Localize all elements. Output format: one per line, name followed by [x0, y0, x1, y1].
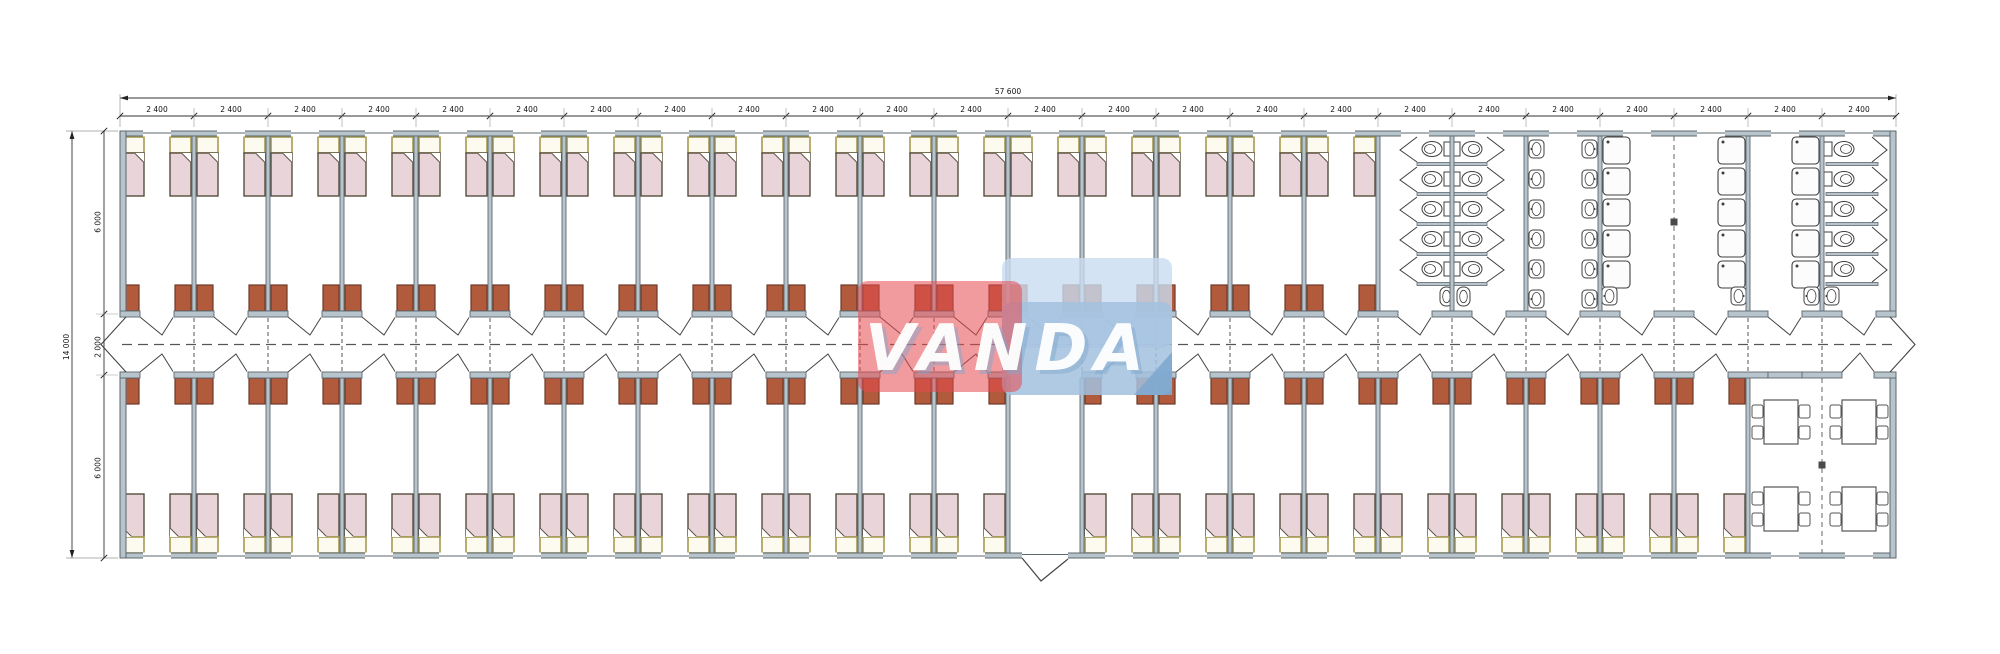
tap	[1805, 295, 1807, 297]
bowl-inner	[1425, 265, 1436, 274]
wardrobe-icon	[419, 285, 435, 311]
window	[1327, 553, 1355, 559]
corridor-wall	[544, 311, 584, 317]
partition-wall	[784, 136, 788, 311]
window	[1549, 553, 1577, 559]
wardrobe-icon	[641, 285, 657, 311]
bowl-inner	[1469, 235, 1480, 244]
door-swing	[1620, 317, 1653, 335]
wardrobe-icon	[789, 378, 805, 404]
stall-door	[1872, 137, 1887, 162]
bowl-inner	[1841, 145, 1852, 154]
module-dim-label: 2 400	[1626, 105, 1648, 114]
pillow	[762, 537, 783, 553]
window	[1475, 131, 1503, 137]
wardrobe-icon	[715, 378, 731, 404]
wardrobe-icon	[1581, 378, 1597, 404]
column-marker	[1671, 219, 1678, 226]
bed-icon	[641, 494, 662, 553]
pillow	[1529, 537, 1550, 553]
pillow	[1724, 537, 1745, 553]
partition-wall	[784, 378, 788, 553]
chair-icon	[1799, 513, 1810, 526]
stall-partition	[1452, 193, 1487, 196]
wardrobe-icon	[493, 378, 509, 404]
corridor-wall	[470, 311, 510, 317]
partition-wall	[1080, 378, 1084, 553]
wardrobe-icon	[271, 285, 287, 311]
floor-plan: VANDA VANDA 57 600 14 000 2 4002 4002 40…	[0, 0, 2000, 654]
door-swing	[140, 317, 173, 335]
overall-width-label: 57 600	[995, 87, 1021, 96]
window	[1475, 553, 1503, 559]
basin	[1734, 290, 1743, 303]
pillow	[1576, 537, 1597, 553]
tap	[1742, 295, 1744, 297]
bowl-inner	[1425, 235, 1436, 244]
wardrobe-icon	[619, 285, 635, 311]
window	[1845, 131, 1873, 137]
toilet-icon	[1422, 232, 1452, 247]
bed-icon	[493, 494, 514, 553]
toilet-icon	[1452, 142, 1482, 157]
sink-icon	[1529, 290, 1544, 308]
pillow	[318, 537, 339, 553]
stall-door	[1487, 137, 1504, 162]
corridor-wall	[1580, 372, 1620, 378]
wardrobe-icon	[1455, 378, 1471, 404]
wardrobe-icon	[397, 378, 413, 404]
chair-icon	[1752, 513, 1763, 526]
pillow	[1058, 137, 1079, 153]
window	[957, 131, 985, 137]
bed-icon	[863, 494, 884, 553]
stall-partition	[1452, 253, 1487, 256]
stall-partition	[1826, 283, 1878, 286]
bowl-inner	[1469, 145, 1480, 154]
shower-icon	[1718, 199, 1745, 226]
tap	[1530, 298, 1532, 300]
shower-icon	[1603, 168, 1630, 195]
bed-icon	[641, 137, 662, 196]
partition-wall	[932, 378, 936, 553]
pillow	[1206, 537, 1227, 553]
window	[1771, 553, 1799, 559]
corridor-wall	[174, 372, 214, 378]
pillow	[1132, 537, 1153, 553]
pillow	[1233, 137, 1254, 153]
pillow	[1011, 137, 1032, 153]
bed-icon	[419, 494, 440, 553]
pillow	[1280, 137, 1301, 153]
corridor-wall	[322, 311, 362, 317]
wardrobe-icon	[1211, 285, 1227, 311]
tap	[1603, 295, 1605, 297]
corridor-wall	[1432, 372, 1472, 378]
module-dim-label: 2 400	[1108, 105, 1130, 114]
window	[439, 131, 467, 137]
table	[1842, 487, 1876, 531]
pillow	[614, 137, 635, 153]
window	[587, 553, 615, 559]
pillow	[567, 137, 588, 153]
module-dim-label: 2 400	[442, 105, 464, 114]
pillow	[641, 137, 662, 153]
bowl-inner	[1425, 175, 1436, 184]
window	[1771, 131, 1799, 137]
corridor-wall	[618, 311, 658, 317]
floor-plan-svg: VANDA VANDA 57 600 14 000 2 4002 4002 40…	[0, 0, 2000, 654]
window	[883, 553, 911, 559]
toilet-icon	[1452, 202, 1482, 217]
wardrobe-icon	[1381, 378, 1397, 404]
tank	[1824, 142, 1832, 156]
module-dim-label: 2 400	[1256, 105, 1278, 114]
dim-arrow	[120, 96, 128, 101]
stall-partition	[1826, 223, 1878, 226]
table	[1764, 400, 1798, 444]
pillow	[1159, 137, 1180, 153]
window	[1845, 553, 1873, 559]
pillow	[1085, 537, 1106, 553]
window	[1697, 553, 1725, 559]
toilet-icon	[1824, 172, 1854, 187]
window	[1401, 553, 1429, 559]
wardrobe-icon	[1359, 285, 1375, 311]
stall-partition	[1452, 283, 1487, 286]
window	[1253, 131, 1281, 137]
toilet-icon	[1422, 262, 1452, 277]
corridor-wall	[1768, 372, 1802, 378]
pillow	[493, 537, 514, 553]
sink-icon	[1582, 290, 1597, 308]
stall-door	[1400, 137, 1417, 162]
partition-wall	[1228, 378, 1232, 553]
pillow	[1206, 137, 1227, 153]
module-dim-label: 2 400	[368, 105, 390, 114]
corridor-wall	[1432, 311, 1472, 317]
door-swing	[1546, 354, 1579, 372]
corridor-wall	[618, 372, 658, 378]
module-dim-label: 2 400	[294, 105, 316, 114]
pillow	[197, 537, 218, 553]
bed-icon	[1529, 494, 1550, 553]
bed-icon	[466, 494, 487, 553]
door-swing	[1250, 354, 1283, 372]
pillow	[419, 137, 440, 153]
module-dim-label: 2 400	[146, 105, 168, 114]
drain	[1607, 172, 1610, 175]
corridor-wall	[1728, 311, 1768, 317]
partition-wall	[340, 136, 344, 311]
window	[217, 131, 245, 137]
door-swing	[732, 317, 765, 335]
module-dim-label: 2 400	[1774, 105, 1796, 114]
module-dim-label: 2 400	[1182, 105, 1204, 114]
tap	[1530, 148, 1532, 150]
door-swing	[362, 354, 395, 372]
pillow	[1132, 137, 1153, 153]
basin	[1585, 263, 1594, 276]
stall-partition	[1417, 193, 1452, 196]
tap	[1530, 268, 1532, 270]
chair-icon	[1752, 426, 1763, 439]
stall-door	[1487, 257, 1504, 282]
pillow	[1280, 537, 1301, 553]
stall-partition	[1417, 163, 1452, 166]
depth-segment-label: 6 000	[94, 457, 103, 479]
window	[1697, 131, 1725, 137]
drain	[1796, 265, 1799, 268]
bed-icon	[1085, 137, 1106, 196]
shower-icon	[1792, 137, 1819, 164]
door-swing	[1398, 354, 1431, 372]
module-dim-label: 2 400	[1330, 105, 1352, 114]
corridor-wall	[1506, 372, 1546, 378]
chair-icon	[1830, 513, 1841, 526]
bed-icon	[1455, 494, 1476, 553]
door-swing	[1472, 317, 1505, 335]
chair-icon	[1830, 405, 1841, 418]
partition-wall	[1820, 136, 1824, 311]
dining-table	[1830, 487, 1888, 531]
partition-wall	[1302, 136, 1306, 311]
door-swing	[510, 354, 543, 372]
window	[809, 131, 837, 137]
chair-icon	[1752, 492, 1763, 505]
chair-icon	[1877, 405, 1888, 418]
door-swing	[584, 354, 617, 372]
sink-icon	[1529, 170, 1544, 188]
tap	[1593, 178, 1595, 180]
bed-icon	[984, 137, 1005, 196]
wardrobe-icon	[1307, 378, 1323, 404]
tap	[1825, 295, 1827, 297]
basin	[1585, 233, 1594, 246]
stall-door	[1400, 167, 1417, 192]
toilet-icon	[1452, 172, 1482, 187]
dining-table	[1752, 487, 1810, 531]
partition-wall	[488, 136, 492, 311]
stall-door	[1400, 227, 1417, 252]
partition-wall	[266, 136, 270, 311]
window	[1623, 553, 1651, 559]
stall-partition	[1417, 253, 1452, 256]
pillow	[937, 137, 958, 153]
wardrobe-icon	[567, 378, 583, 404]
bed-icon	[1206, 494, 1227, 553]
window	[735, 131, 763, 137]
bed-icon	[1307, 137, 1328, 196]
east-exit-door	[1890, 317, 1915, 372]
bed-icon	[318, 494, 339, 553]
drain	[1796, 141, 1799, 144]
wardrobe-icon	[1307, 285, 1323, 311]
toilet-icon	[1422, 202, 1452, 217]
door-swing	[288, 354, 321, 372]
stall-partition	[1826, 253, 1878, 256]
pillow	[910, 537, 931, 553]
module-dim-label: 2 400	[664, 105, 686, 114]
wardrobe-icon	[197, 285, 213, 311]
window	[365, 131, 393, 137]
bed-icon	[1603, 494, 1624, 553]
chair-icon	[1877, 426, 1888, 439]
wardrobe-icon	[1285, 285, 1301, 311]
door-swing	[1176, 317, 1209, 335]
basin	[1532, 203, 1541, 216]
pillow	[762, 137, 783, 153]
wardrobe-icon	[1603, 378, 1619, 404]
wardrobe-icon	[1655, 378, 1671, 404]
stall-partition	[1417, 223, 1452, 226]
window	[1031, 131, 1059, 137]
corridor-wall	[174, 311, 214, 317]
toilet-icon	[1422, 172, 1452, 187]
window	[217, 553, 245, 559]
outer-wall-right	[1890, 131, 1896, 317]
partition-wall	[1450, 136, 1454, 311]
basin	[1532, 173, 1541, 186]
window	[439, 553, 467, 559]
module-dim-label: 2 400	[1034, 105, 1056, 114]
sink-icon	[1804, 287, 1819, 305]
wardrobe-icon	[1677, 378, 1693, 404]
wardrobe-icon	[175, 285, 191, 311]
toilet-icon	[1824, 142, 1854, 157]
bed-icon	[937, 137, 958, 196]
bed-icon	[392, 494, 413, 553]
pillow	[466, 137, 487, 153]
window	[143, 553, 171, 559]
pillow	[1381, 537, 1402, 553]
pillow	[641, 537, 662, 553]
bed-icon	[1011, 137, 1032, 196]
wardrobe-icon	[567, 285, 583, 311]
toilet-icon	[1824, 232, 1854, 247]
stall-door	[1400, 197, 1417, 222]
bed-icon	[1058, 137, 1079, 196]
module-dim-label: 2 400	[516, 105, 538, 114]
door-swing	[140, 354, 173, 372]
bowl-inner	[1469, 175, 1480, 184]
pillow	[1307, 137, 1328, 153]
bed-icon	[540, 137, 561, 196]
stall-door	[1487, 167, 1504, 192]
corridor-wall	[1358, 311, 1398, 317]
door-swing	[214, 354, 247, 372]
door-swing	[1842, 317, 1875, 335]
shower-icon	[1792, 168, 1819, 195]
bed-icon	[170, 137, 191, 196]
door-swing	[732, 354, 765, 372]
wardrobe-icon	[1529, 378, 1545, 404]
vanda-logo: VANDA VANDA	[858, 258, 1172, 395]
tank	[1824, 232, 1832, 246]
door-swing	[658, 354, 691, 372]
window	[291, 131, 319, 137]
drain	[1722, 172, 1725, 175]
window	[1401, 131, 1429, 137]
drain	[1607, 141, 1610, 144]
tank	[1824, 202, 1832, 216]
corridor-wall	[1802, 372, 1842, 378]
corridor-wall	[1876, 311, 1896, 317]
corridor-wall	[1874, 372, 1896, 378]
basin	[1443, 290, 1451, 302]
module-dim-label: 2 400	[590, 105, 612, 114]
bed-icon	[1159, 137, 1180, 196]
partition-wall	[192, 136, 196, 311]
dining-table	[1830, 400, 1888, 444]
wardrobe-icon	[397, 285, 413, 311]
tap	[1593, 298, 1595, 300]
partition-wall	[636, 136, 640, 311]
bed-icon	[1354, 137, 1375, 196]
bowl-inner	[1841, 235, 1852, 244]
module-dim-label: 2 400	[738, 105, 760, 114]
pillow	[789, 137, 810, 153]
window	[1623, 131, 1651, 137]
partition-wall	[340, 378, 344, 553]
stall-partition	[1452, 163, 1487, 166]
bed-icon	[1280, 137, 1301, 196]
window	[809, 553, 837, 559]
partition-wall	[1376, 378, 1380, 553]
bed-icon	[271, 494, 292, 553]
shower-icon	[1792, 230, 1819, 257]
wardrobe-icon	[419, 378, 435, 404]
module-dim-label: 2 400	[1848, 105, 1870, 114]
module-dim-label: 2 400	[1404, 105, 1426, 114]
shower-icon	[1603, 137, 1630, 164]
partition-wall	[266, 378, 270, 553]
corridor-wall	[1210, 311, 1250, 317]
bed-icon	[836, 494, 857, 553]
stall-door	[1872, 167, 1887, 192]
window	[365, 553, 393, 559]
chair-icon	[1877, 492, 1888, 505]
bed-icon	[1233, 137, 1254, 196]
corridor-wall	[544, 372, 584, 378]
basin	[1460, 290, 1468, 302]
sink-icon	[1529, 200, 1544, 218]
pillow	[1677, 537, 1698, 553]
chair-icon	[1830, 492, 1841, 505]
window	[1253, 553, 1281, 559]
bowl-inner	[1841, 175, 1852, 184]
door-swing	[1176, 354, 1209, 372]
pillow	[567, 537, 588, 553]
bed-icon	[1502, 494, 1523, 553]
table	[1842, 400, 1876, 444]
basin	[1532, 263, 1541, 276]
corridor-wall	[120, 311, 140, 317]
door-swing	[288, 317, 321, 335]
corridor-wall	[1210, 372, 1250, 378]
window	[291, 553, 319, 559]
bed-icon	[1650, 494, 1671, 553]
tank	[1824, 262, 1832, 276]
door-swing	[362, 317, 395, 335]
bed-icon	[910, 137, 931, 196]
drain	[1722, 203, 1725, 206]
door-swing	[1324, 354, 1357, 372]
corridor-wall	[396, 311, 436, 317]
wardrobe-icon	[841, 378, 857, 404]
bed-icon	[937, 494, 958, 553]
bed-icon	[567, 494, 588, 553]
